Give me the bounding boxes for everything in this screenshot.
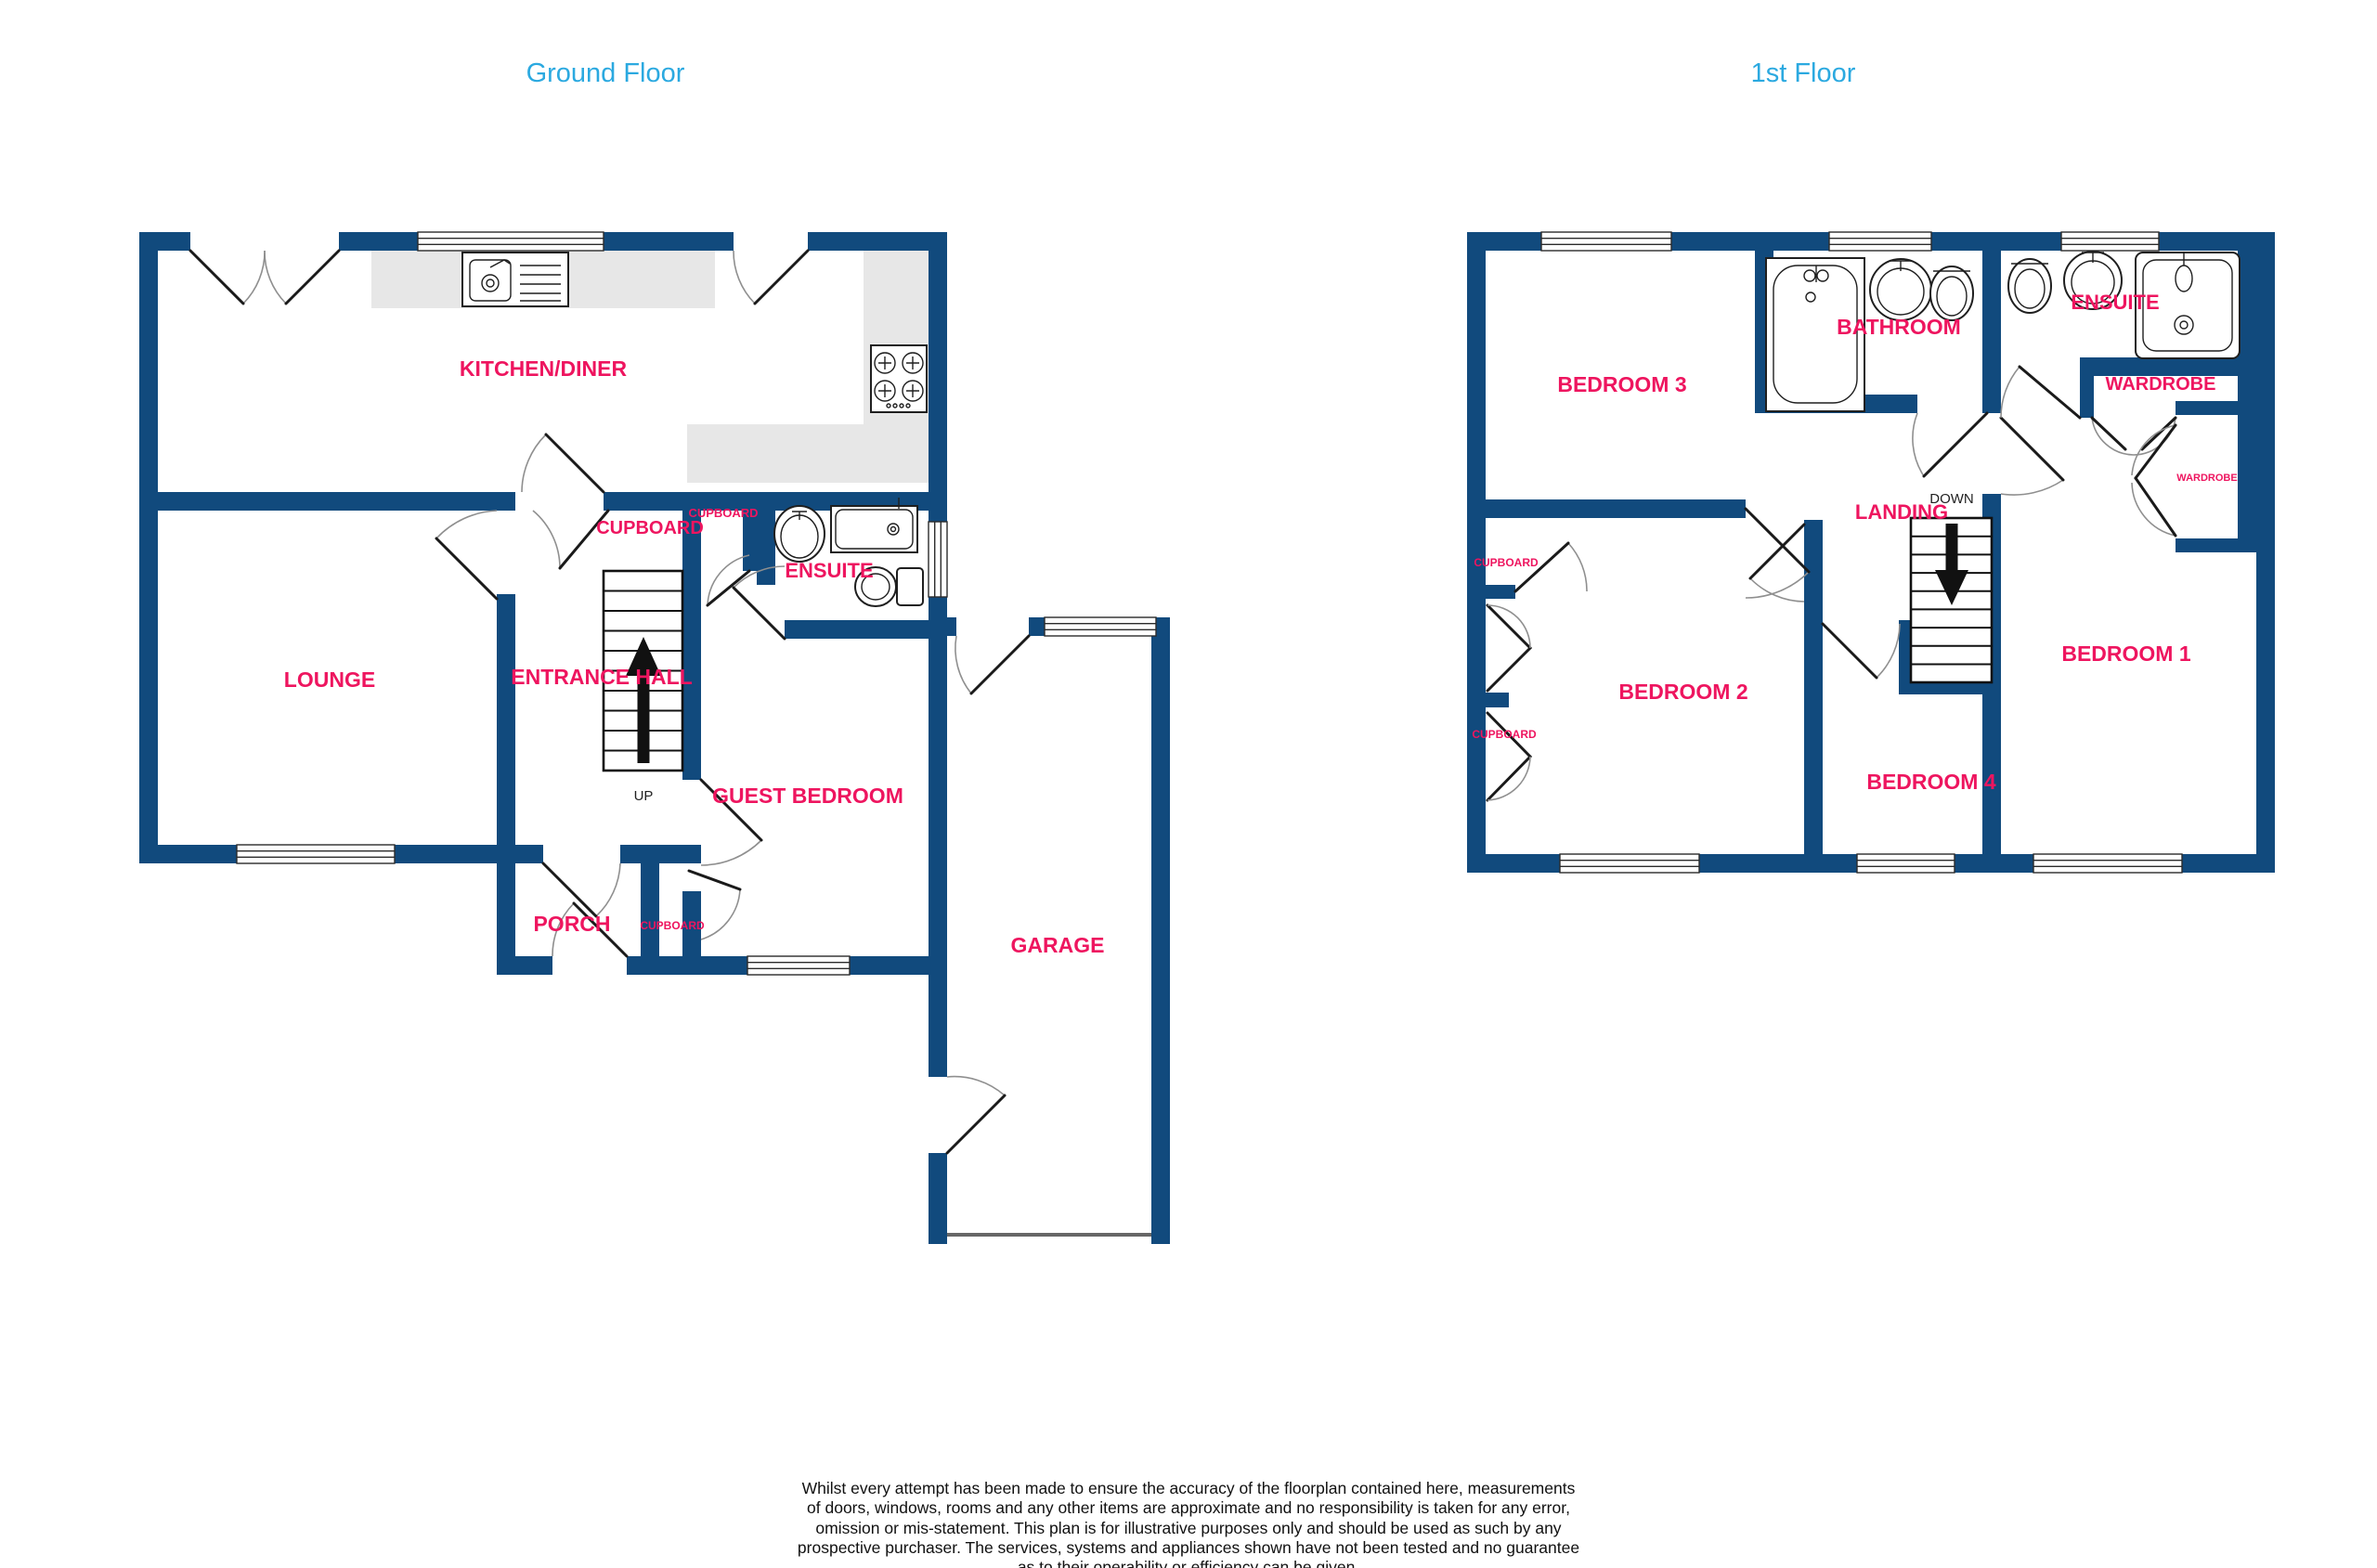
first-cupboard-lower-label: CUPBOARD bbox=[1472, 728, 1537, 741]
floorplan-drawing: Ground Floor bbox=[0, 0, 2377, 1568]
bedroom1-label: BEDROOM 1 bbox=[2061, 641, 2191, 666]
hob-icon bbox=[871, 345, 927, 412]
bedroom3-label: BEDROOM 3 bbox=[1557, 372, 1686, 396]
disclaimer-line: as to their operability or efficiency ca… bbox=[678, 1558, 1699, 1568]
bedroom2-label: BEDROOM 2 bbox=[1618, 680, 1747, 704]
ground-ensuite-label: ENSUITE bbox=[785, 559, 873, 582]
first-doors bbox=[1515, 367, 2176, 678]
kitchen-diner-label: KITCHEN/DINER bbox=[460, 356, 628, 381]
shower-icon bbox=[831, 498, 917, 552]
up-label: UP bbox=[634, 788, 654, 804]
ground-floor-title: Ground Floor bbox=[526, 58, 685, 88]
disclaimer: Whilst every attempt has been made to en… bbox=[678, 1479, 1699, 1568]
disclaimer-line: of doors, windows, rooms and any other i… bbox=[678, 1498, 1699, 1518]
hall-cupboard-small-label: CUPBOARD bbox=[688, 506, 758, 520]
bathroom-label: BATHROOM bbox=[1837, 315, 1961, 339]
porch-label: PORCH bbox=[533, 912, 610, 936]
bathroom-sink-icon bbox=[1870, 259, 1931, 320]
guest-bedroom-label: GUEST BEDROOM bbox=[712, 784, 903, 808]
ground-floor-plan: Ground Floor bbox=[139, 58, 1170, 1244]
bathroom-toilet-icon bbox=[1930, 266, 1973, 320]
hall-cupboard-label: CUPBOARD bbox=[596, 518, 704, 538]
ensuite-toilet-icon bbox=[2008, 259, 2051, 313]
first-cupboard-upper-label: CUPBOARD bbox=[1474, 556, 1539, 569]
kitchen-sink-icon bbox=[462, 253, 568, 306]
ensuite-sink-icon bbox=[774, 506, 825, 562]
bedroom4-label: BEDROOM 4 bbox=[1866, 770, 1996, 794]
first-ensuite-label: ENSUITE bbox=[2071, 291, 2159, 314]
kitchen-counter-icon bbox=[371, 251, 940, 483]
first-floor-title: 1st Floor bbox=[1751, 58, 1856, 88]
stairs-down-icon bbox=[1911, 518, 1992, 682]
disclaimer-line: prospective purchaser. The services, sys… bbox=[678, 1538, 1699, 1558]
down-label: DOWN bbox=[1929, 491, 1974, 507]
disclaimer-line: omission or mis-statement. This plan is … bbox=[678, 1519, 1699, 1538]
lounge-label: LOUNGE bbox=[284, 667, 375, 692]
garage-label: GARAGE bbox=[1011, 933, 1105, 957]
wardrobe-label: WARDROBE bbox=[2106, 374, 2216, 395]
floorplan-page: Ground Floor bbox=[0, 0, 2377, 1568]
disclaimer-line: Whilst every attempt has been made to en… bbox=[678, 1479, 1699, 1498]
wardrobe-small-label: WARDROBE bbox=[2176, 473, 2237, 484]
first-floor-plan: 1st Floor bbox=[1467, 58, 2275, 873]
porch-cupboard-label: CUPBOARD bbox=[640, 919, 705, 932]
entrance-hall-label: ENTRANCE HALL bbox=[511, 665, 693, 689]
